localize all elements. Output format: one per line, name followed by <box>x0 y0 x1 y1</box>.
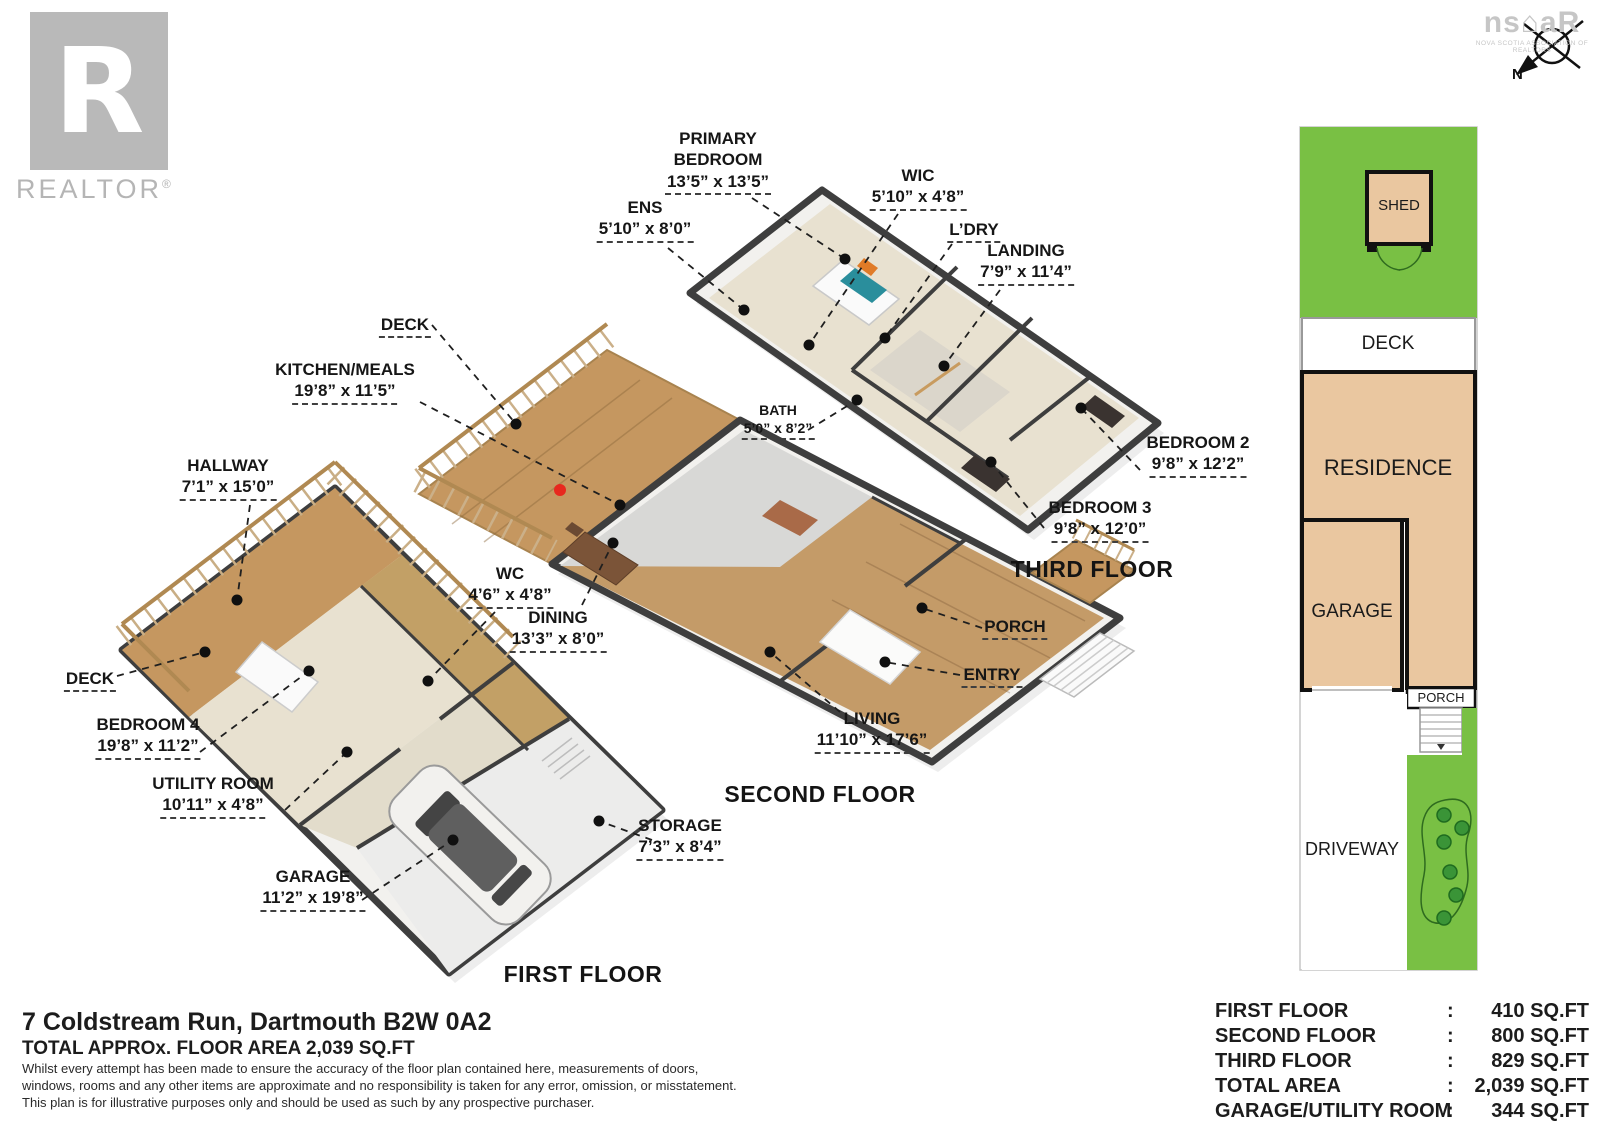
label-bath: BATH 5’0” x 8’2” <box>742 402 815 440</box>
first-floor-title: FIRST FLOOR <box>504 961 663 988</box>
area-row-second-floor: SECOND FLOOR : 800 SQ.FT <box>1215 1025 1589 1048</box>
site-label-porch: PORCH <box>1418 690 1465 705</box>
nsar-logo: ns⌂aR NOVA SCOTIA ASSOCIATION OF REALTOR… <box>1462 8 1600 54</box>
disclaimer-line-1: Whilst every attempt has been made to en… <box>22 1061 698 1076</box>
label-utility-room: UTILITY ROOM 10’11” x 4’8” <box>152 773 274 819</box>
registered-mark: ® <box>162 177 174 191</box>
area-row-third-floor: THIRD FLOOR : 829 SQ.FT <box>1215 1050 1589 1073</box>
realtor-logo-letter: R <box>54 32 145 150</box>
site-label-deck: DECK <box>1362 333 1415 355</box>
label-deck-first: DECK <box>64 668 116 692</box>
site-label-shed: SHED <box>1378 197 1420 214</box>
red-marker-dot <box>554 484 566 496</box>
area-row-first-floor: FIRST FLOOR : 410 SQ.FT <box>1215 1000 1589 1023</box>
site-label-garage: GARAGE <box>1311 601 1392 623</box>
label-storage: STORAGE 7’3” x 8’4” <box>636 815 723 861</box>
area-row-total-area: TOTAL AREA : 2,039 SQ.FT <box>1215 1075 1589 1098</box>
nsar-logo-text: ns⌂aR <box>1462 8 1600 38</box>
second-floor-title: SECOND FLOOR <box>724 781 915 808</box>
site-label-driveway: DRIVEWAY <box>1305 839 1399 860</box>
third-floor-title: THIRD FLOOR <box>1011 556 1174 583</box>
label-garage: GARAGE 11’2” x 19’8” <box>260 866 365 912</box>
label-landing: LANDING 7’9” x 11’4” <box>978 240 1074 286</box>
label-primary-bedroom: PRIMARY BEDROOM 13’5” x 13’5” <box>654 128 782 195</box>
compass-north-label: N <box>1512 66 1523 83</box>
site-driveway <box>1302 694 1407 970</box>
nsar-logo-caption: NOVA SCOTIA ASSOCIATION OF REALTORS <box>1462 40 1600 54</box>
property-address: 7 Coldstream Run, Dartmouth B2W 0A2 <box>22 1008 492 1037</box>
label-wc: WC 4’6” x 4’8” <box>466 563 553 609</box>
label-ens: ENS 5’10” x 8’0” <box>597 197 694 243</box>
disclaimer-line-3: This plan is for illustrative purposes o… <box>22 1095 594 1110</box>
total-area-line: TOTAL APPROx. FLOOR AREA 2,039 SQ.FT <box>22 1038 415 1060</box>
label-bedroom2: BEDROOM 2 9’8” x 12’2” <box>1147 432 1250 478</box>
label-deck-second: DECK <box>379 314 431 338</box>
disclaimer-line-2: windows, rooms and any other items are a… <box>22 1078 737 1093</box>
label-bedroom4: BEDROOM 4 19’8” x 11’2” <box>95 714 200 760</box>
label-wic: WIC 5’10” x 4’8” <box>870 165 967 211</box>
site-label-residence: RESIDENCE <box>1324 455 1452 481</box>
label-bedroom3: BEDROOM 3 9’8” x 12’0” <box>1049 497 1152 543</box>
label-hallway: HALLWAY 7’1” x 15’0” <box>180 455 277 501</box>
label-entry: ENTRY <box>962 664 1023 688</box>
floorplan-page: { "branding": { "realtor_logo": { "lette… <box>0 0 1600 1131</box>
realtor-logo: R <box>30 12 168 170</box>
label-kitchen-meals: KITCHEN/MEALS 19’8” x 11’5” <box>275 359 415 405</box>
label-living: LIVING 11’10” x 17’6” <box>815 708 930 754</box>
label-porch: PORCH <box>982 616 1047 640</box>
label-dining: DINING 13’3” x 8’0” <box>510 607 607 653</box>
area-row-garage-utility: GARAGE/UTILITY ROOM : 344 SQ.FT <box>1215 1100 1589 1123</box>
realtor-wordmark: REALTOR® <box>16 174 192 205</box>
floorplan-graphics <box>0 0 1600 1131</box>
